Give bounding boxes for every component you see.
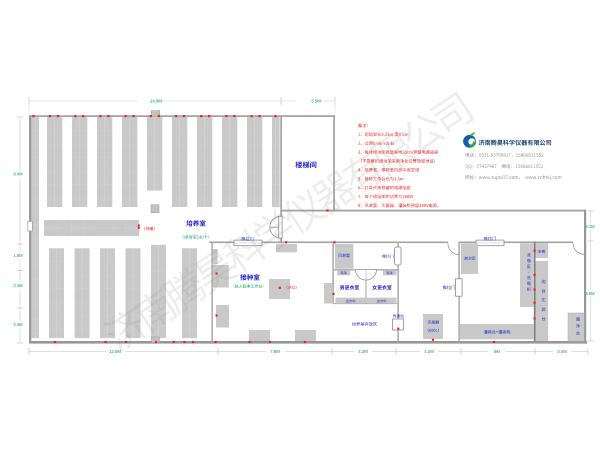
svg-text:4.2M: 4.2M	[424, 349, 434, 354]
svg-text:1.8M: 1.8M	[13, 253, 23, 258]
svg-text:2.4M: 2.4M	[13, 322, 23, 327]
svg-text:5M: 5M	[494, 349, 500, 354]
svg-text:3.5M: 3.5M	[311, 99, 321, 104]
svg-text:12.6M: 12.6M	[109, 349, 121, 354]
svg-text:2.4M: 2.4M	[13, 283, 23, 288]
svg-text:4.2M: 4.2M	[358, 349, 368, 354]
svg-text:7.8M: 7.8M	[270, 349, 280, 354]
svg-text:8.4M: 8.4M	[13, 172, 23, 177]
svg-text:3.4M: 3.4M	[557, 349, 567, 354]
svg-text:2.1M: 2.1M	[585, 224, 595, 229]
svg-text:14.8M: 14.8M	[150, 99, 162, 104]
svg-text:6.6M: 6.6M	[585, 291, 595, 296]
